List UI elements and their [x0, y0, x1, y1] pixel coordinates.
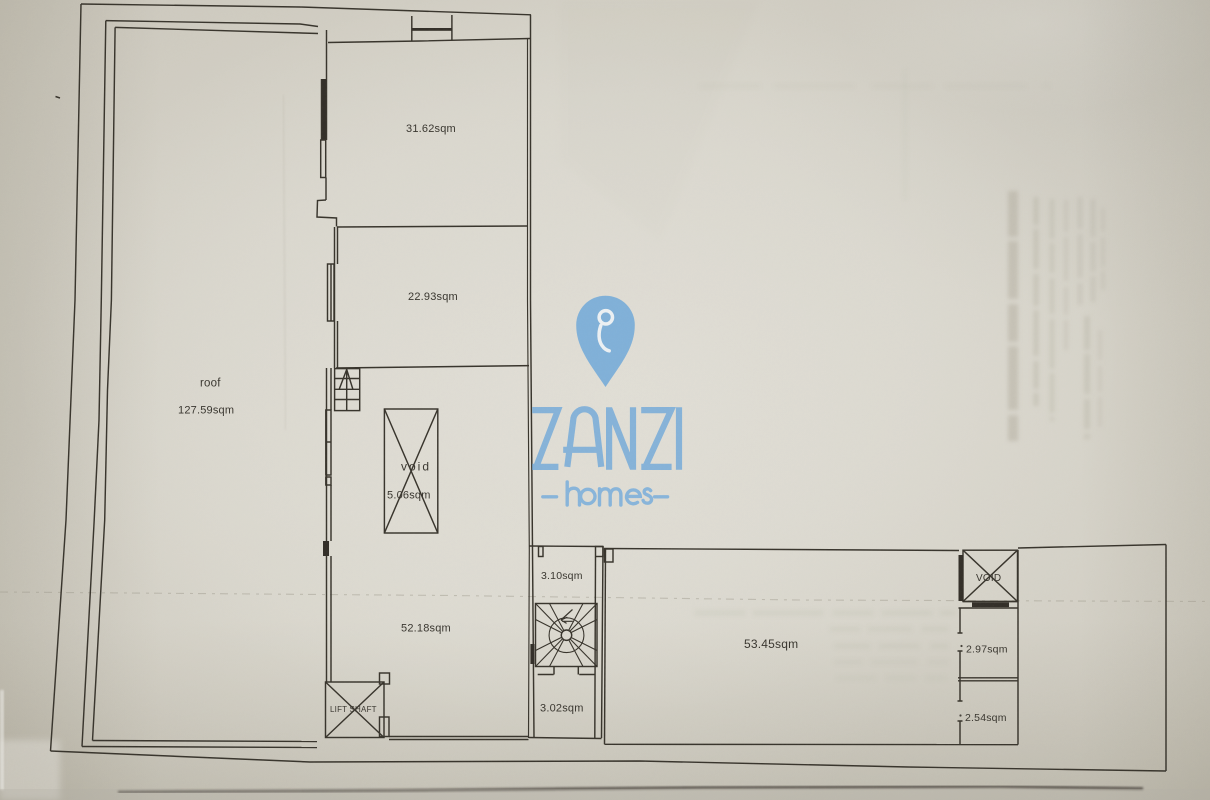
- svg-text:53.45sqm: 53.45sqm: [744, 637, 798, 651]
- svg-text:31.62sqm: 31.62sqm: [406, 123, 456, 135]
- svg-text:2.54sqm: 2.54sqm: [965, 712, 1007, 724]
- svg-text:VOID: VOID: [976, 573, 1001, 584]
- svg-text:LIFT SHAFT: LIFT SHAFT: [330, 705, 377, 714]
- svg-text:127.59sqm: 127.59sqm: [178, 405, 234, 417]
- svg-text:2.97sqm: 2.97sqm: [966, 644, 1008, 656]
- svg-text:5.06sqm: 5.06sqm: [387, 490, 431, 502]
- svg-text:roof: roof: [200, 378, 221, 390]
- svg-text:3.10sqm: 3.10sqm: [541, 570, 583, 582]
- svg-text:3.02sqm: 3.02sqm: [540, 703, 584, 715]
- svg-text:void: void: [401, 460, 431, 474]
- svg-text:22.93sqm: 22.93sqm: [408, 291, 458, 303]
- svg-text:52.18sqm: 52.18sqm: [401, 623, 451, 635]
